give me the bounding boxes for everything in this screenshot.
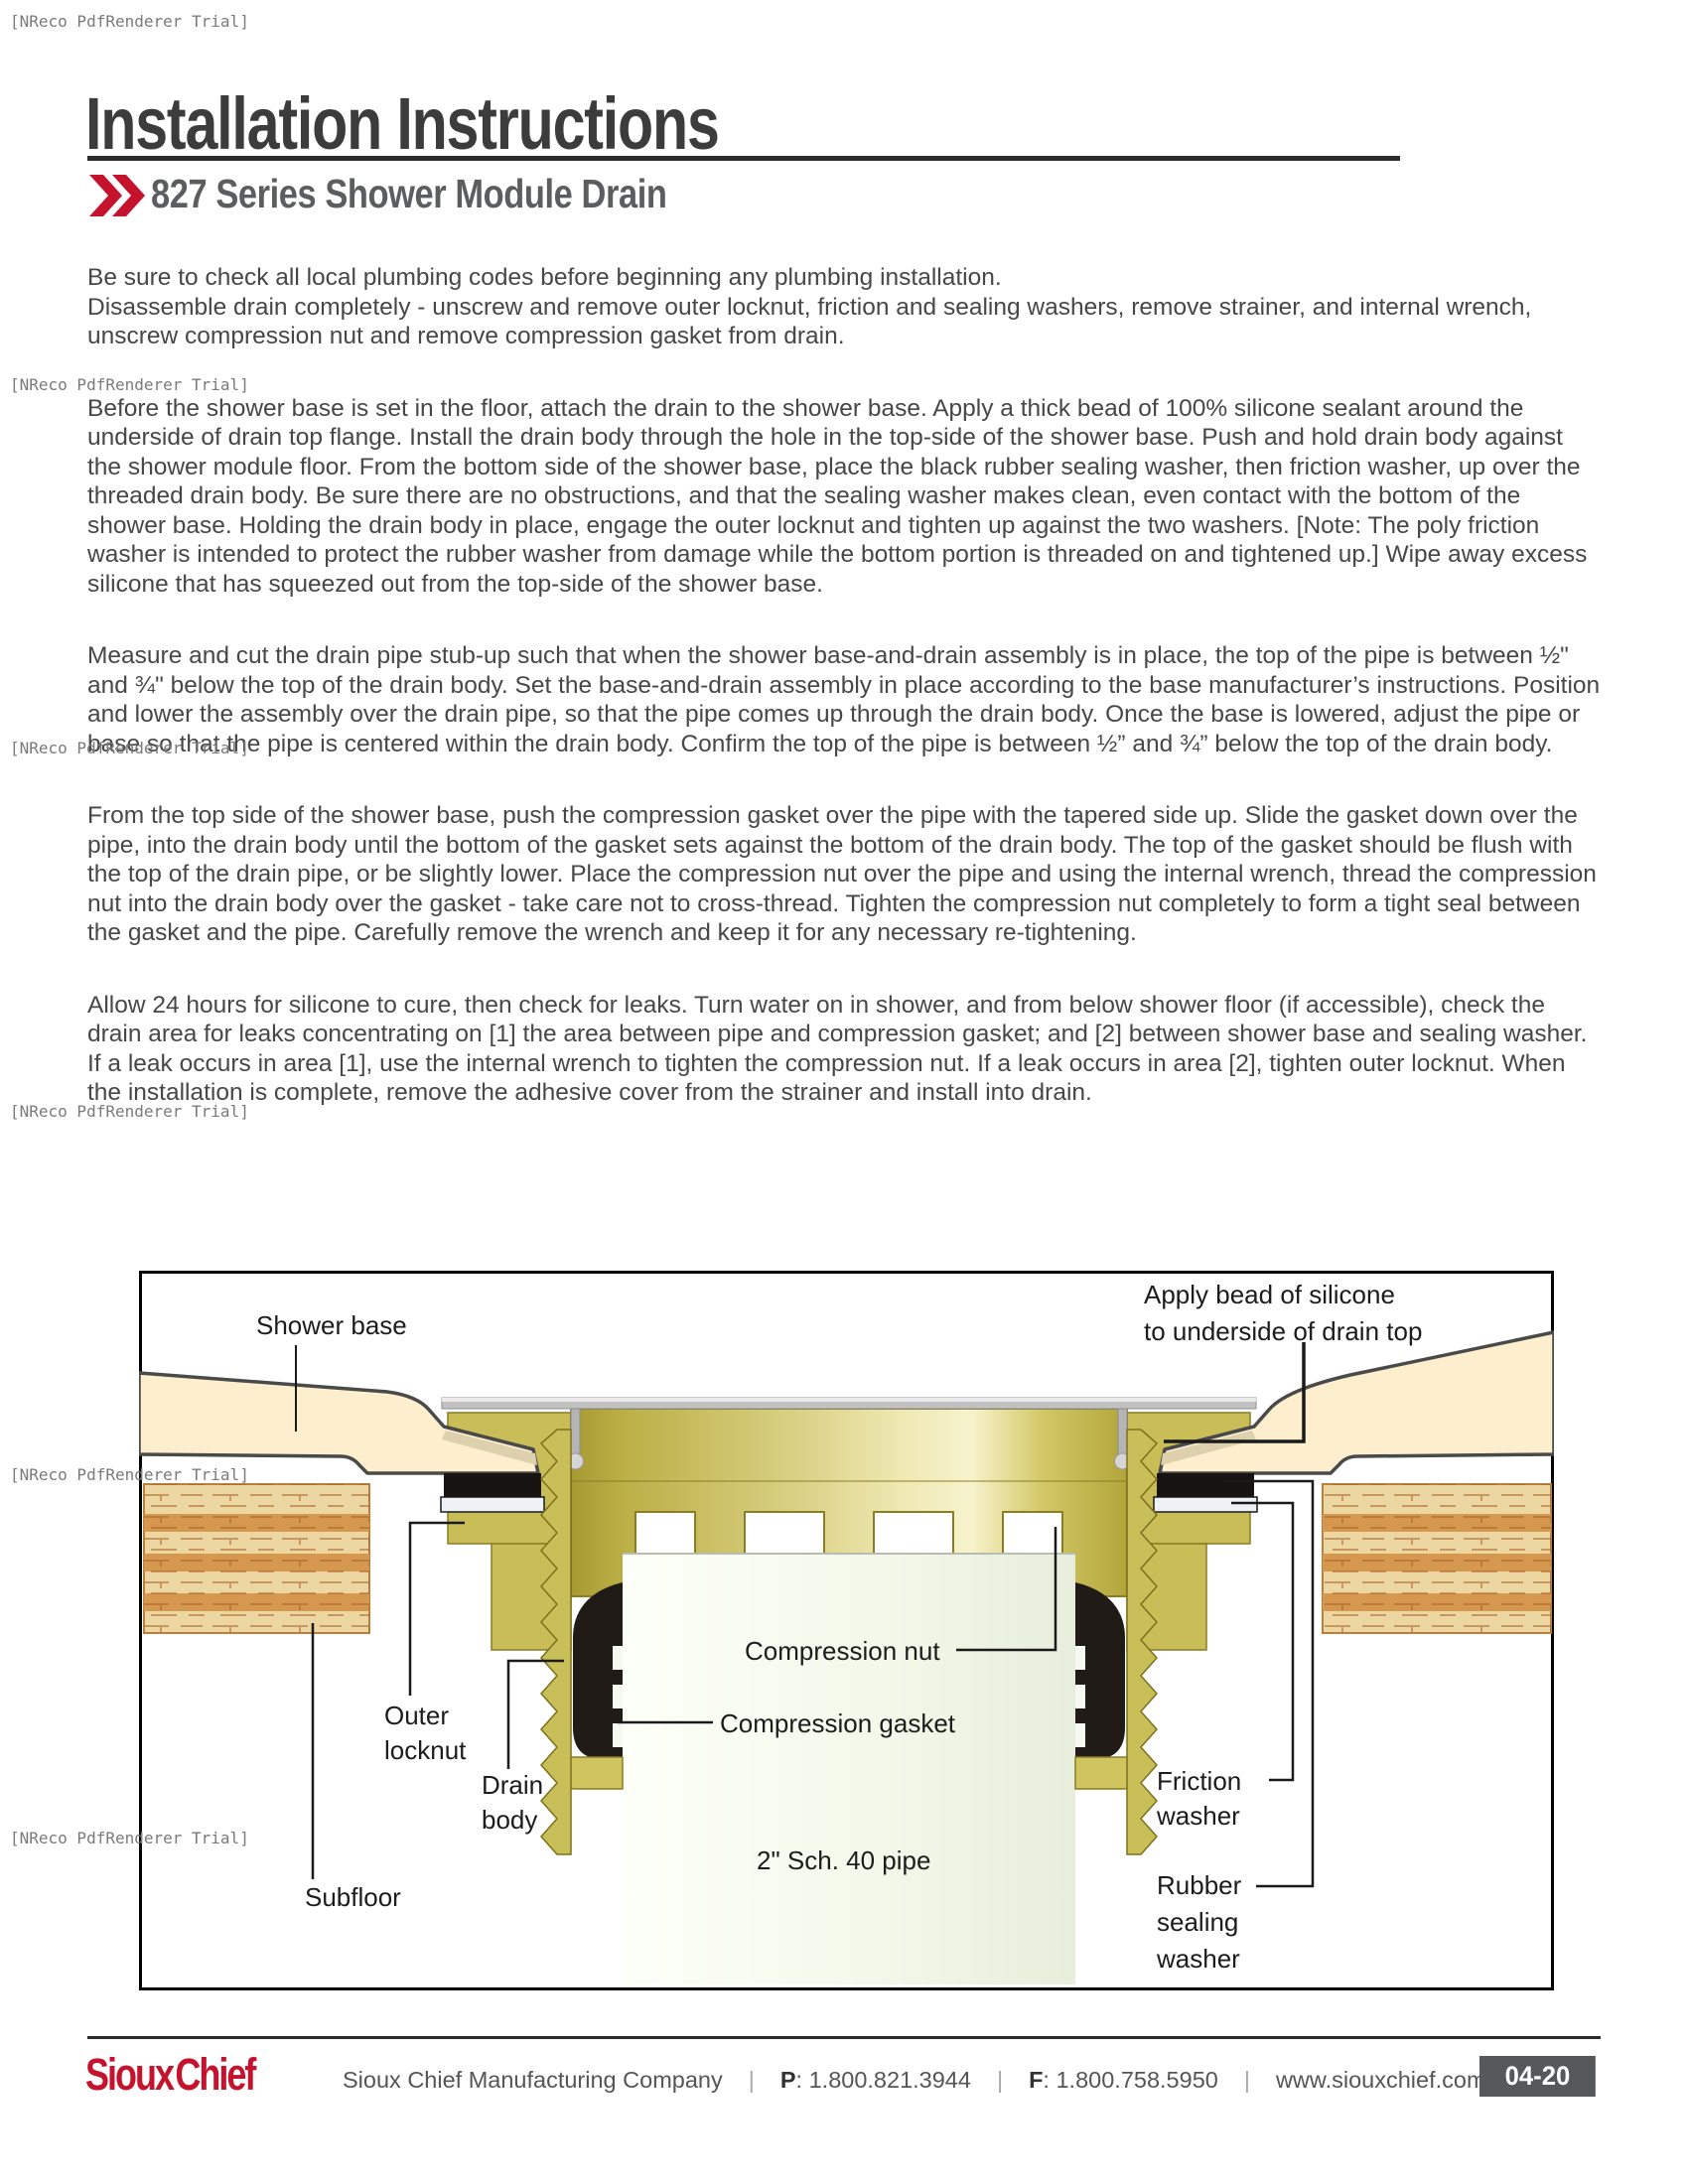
footer-fax-number: : 1.800.758.5950 (1043, 2067, 1217, 2093)
paragraph: Before the shower base is set in the flo… (87, 394, 1601, 600)
paragraph: Measure and cut the drain pipe stub-up s… (87, 641, 1601, 758)
footer-phone-number: : 1.800.821.3944 (796, 2067, 971, 2093)
paragraph: Be sure to check all local plumbing code… (87, 263, 1601, 351)
label-outer-locknut-1: Outer (384, 1701, 449, 1730)
subfloor-wood-left (144, 1484, 369, 1633)
label-drain-body-1: Drain (482, 1770, 543, 1800)
page-code-badge: 04-20 (1479, 2056, 1596, 2097)
footer-separator: | (997, 2067, 1003, 2094)
pipe-shape (623, 1554, 1075, 1984)
footer-phone-label: P (780, 2067, 796, 2093)
watermark: [NReco PdfRenderer Trial] (10, 1465, 249, 1484)
footer-company: Sioux Chief Manufacturing Company (343, 2067, 723, 2094)
drain-cross-section-diagram: Shower base Apply bead of silicone to un… (139, 1271, 1554, 1990)
page-title: Installation Instructions (85, 81, 719, 166)
label-outer-locknut-2: locknut (384, 1735, 467, 1765)
label-rubber-washer-1: Rubber (1157, 1870, 1242, 1900)
watermark: [NReco PdfRenderer Trial] (10, 1102, 249, 1121)
page-subtitle: 827 Series Shower Module Drain (151, 171, 667, 217)
footer-website: www.siouxchief.com (1276, 2067, 1486, 2094)
label-compression-nut: Compression nut (745, 1636, 940, 1666)
label-compression-gasket: Compression gasket (720, 1708, 956, 1738)
strainer-plate-shape (442, 1398, 1256, 1409)
instructions-text: Be sure to check all local plumbing code… (87, 263, 1601, 1151)
footer-phone: P: 1.800.821.3944 (780, 2067, 971, 2094)
label-rubber-washer-3: washer (1156, 1944, 1240, 1974)
footer-separator: | (749, 2067, 755, 2094)
label-apply-bead-1: Apply bead of silicone (1144, 1280, 1395, 1309)
label-drain-body-2: body (482, 1805, 537, 1835)
subfloor-wood-right (1323, 1484, 1551, 1633)
footer-rule (87, 2036, 1601, 2039)
footer-fax-label: F (1029, 2067, 1043, 2093)
watermark: [NReco PdfRenderer Trial] (10, 739, 249, 757)
footer-info: Sioux Chief Manufacturing Company | P: 1… (343, 2067, 1486, 2094)
label-apply-bead-2: to underside of drain top (1144, 1316, 1422, 1346)
label-friction-washer-1: Friction (1157, 1766, 1241, 1796)
watermark: [NReco PdfRenderer Trial] (10, 12, 249, 31)
watermark: [NReco PdfRenderer Trial] (10, 375, 249, 394)
label-pipe: 2" Sch. 40 pipe (757, 1845, 930, 1875)
paragraph: Allow 24 hours for silicone to cure, the… (87, 991, 1601, 1108)
footer-separator: | (1244, 2067, 1250, 2094)
label-friction-washer-2: washer (1156, 1801, 1240, 1831)
paragraph: From the top side of the shower base, pu… (87, 801, 1601, 948)
label-rubber-washer-2: sealing (1157, 1907, 1238, 1937)
label-subfloor: Subfloor (305, 1882, 401, 1912)
sioux-chief-logo: Sioux Chief (85, 2049, 254, 2101)
double-chevron-icon (89, 175, 147, 218)
title-underline (87, 156, 1400, 161)
footer-fax: F: 1.800.758.5950 (1029, 2067, 1218, 2094)
watermark: [NReco PdfRenderer Trial] (10, 1829, 249, 1847)
label-shower-base: Shower base (256, 1310, 407, 1340)
